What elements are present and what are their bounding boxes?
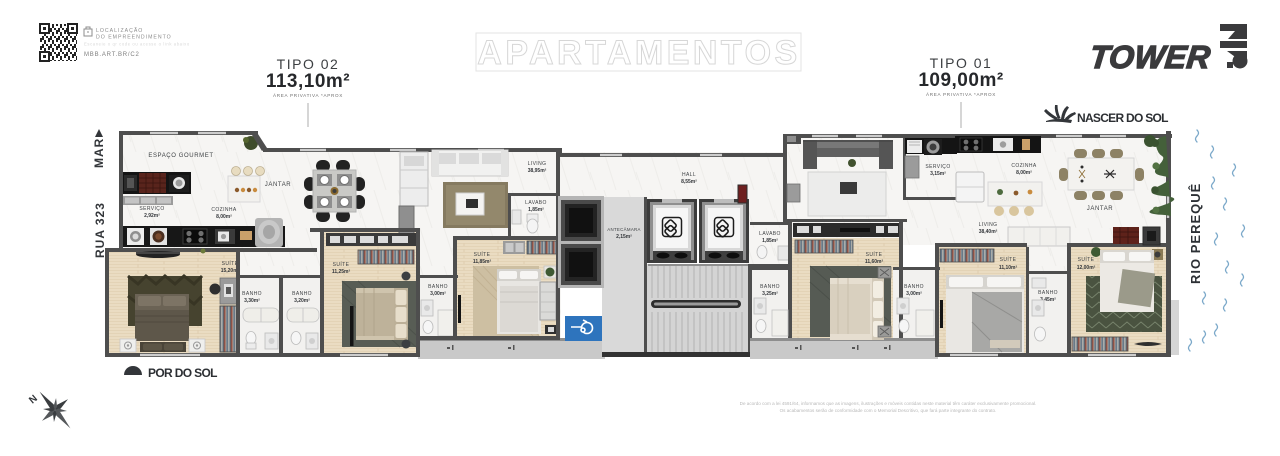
svg-text:109,00m²: 109,00m² xyxy=(918,70,1003,91)
svg-text:LOCALIZAÇÃO: LOCALIZAÇÃO xyxy=(96,27,143,34)
svg-text:HALL: HALL xyxy=(682,172,696,178)
svg-text:ANTECÂMARA: ANTECÂMARA xyxy=(607,227,641,232)
svg-text:2,92m²: 2,92m² xyxy=(144,213,160,219)
svg-text:LAVABO: LAVABO xyxy=(525,200,547,206)
svg-text:SERVIÇO: SERVIÇO xyxy=(139,206,164,212)
svg-text:BANHO: BANHO xyxy=(760,284,780,290)
svg-text:11,25m²: 11,25m² xyxy=(332,269,351,275)
svg-text:RUA 323: RUA 323 xyxy=(93,202,107,258)
svg-text:8,55m²: 8,55m² xyxy=(681,179,697,185)
svg-text:38,40m²: 38,40m² xyxy=(979,229,998,235)
svg-text:11,85m²: 11,85m² xyxy=(473,259,492,265)
svg-text:ÁREA PRIVATIVA *APROX: ÁREA PRIVATIVA *APROX xyxy=(273,92,343,98)
svg-text:BANHO: BANHO xyxy=(428,284,448,290)
svg-text:BANHO: BANHO xyxy=(904,284,924,290)
svg-text:POR DO SOL: POR DO SOL xyxy=(148,366,218,380)
svg-text:BANHO: BANHO xyxy=(292,291,312,297)
svg-text:BANHO: BANHO xyxy=(242,291,262,297)
svg-text:12,00m²: 12,00m² xyxy=(1077,265,1096,271)
svg-text:11,10m²: 11,10m² xyxy=(999,265,1018,271)
svg-text:COZINHA: COZINHA xyxy=(1011,163,1037,169)
svg-text:3,30m²: 3,30m² xyxy=(244,298,260,304)
svg-text:MAR: MAR xyxy=(92,138,106,168)
svg-text:NASCER DO SOL: NASCER DO SOL xyxy=(1077,111,1169,125)
svg-text:3,15m²: 3,15m² xyxy=(930,171,946,177)
svg-text:8,00m²: 8,00m² xyxy=(216,214,232,220)
svg-text:BANHO: BANHO xyxy=(1038,290,1058,296)
svg-text:ÁREA PRIVATIVA *APROX: ÁREA PRIVATIVA *APROX xyxy=(926,91,996,97)
svg-text:SUÍTE: SUÍTE xyxy=(866,251,883,258)
svg-text:1,85m²: 1,85m² xyxy=(762,238,778,244)
svg-text:3,20m²: 3,20m² xyxy=(294,298,310,304)
svg-text:3,00m²: 3,00m² xyxy=(430,291,446,297)
svg-text:3,00m²: 3,00m² xyxy=(906,291,922,297)
svg-text:ESPAÇO GOURMET: ESPAÇO GOURMET xyxy=(148,153,213,159)
svg-text:2,15m²: 2,15m² xyxy=(616,234,632,240)
svg-text:Os acabamentos serão de confor: Os acabamentos serão de conformidade com… xyxy=(780,408,997,413)
svg-text:COZINHA: COZINHA xyxy=(211,207,237,213)
svg-text:TOWER: TOWER xyxy=(1088,39,1212,75)
svg-text:SUÍTE: SUÍTE xyxy=(1078,256,1095,263)
svg-text:LIVING: LIVING xyxy=(528,161,547,167)
svg-text:8,00m²: 8,00m² xyxy=(1016,170,1032,176)
svg-text:RIO PEREQUÊ: RIO PEREQUÊ xyxy=(1188,183,1203,284)
svg-text:APARTAMENTOS: APARTAMENTOS xyxy=(477,34,800,72)
svg-text:1,85m²: 1,85m² xyxy=(528,207,544,213)
svg-text:TIPO 01: TIPO 01 xyxy=(930,55,993,71)
svg-text:Escaneie o qr code ou acesse o: Escaneie o qr code ou acesse o link abai… xyxy=(84,42,190,47)
svg-text:38,95m²: 38,95m² xyxy=(528,168,547,174)
svg-text:MBB.ART.BR/C2: MBB.ART.BR/C2 xyxy=(84,52,140,58)
svg-text:113,10m²: 113,10m² xyxy=(266,71,350,92)
svg-text:LAVABO: LAVABO xyxy=(759,231,781,237)
svg-text:3,25m²: 3,25m² xyxy=(762,291,778,297)
svg-text:11,60m²: 11,60m² xyxy=(865,259,884,265)
svg-text:LIVING: LIVING xyxy=(979,222,998,228)
svg-text:DO EMPREENDIMENTO: DO EMPREENDIMENTO xyxy=(96,35,172,41)
svg-text:JANTAR: JANTAR xyxy=(1087,206,1114,212)
svg-text:SERVIÇO: SERVIÇO xyxy=(925,164,950,170)
svg-text:SUÍTE: SUÍTE xyxy=(474,251,491,258)
svg-text:TIPO 02: TIPO 02 xyxy=(277,56,340,72)
svg-text:JANTAR: JANTAR xyxy=(265,182,292,188)
svg-text:SUÍTE: SUÍTE xyxy=(333,261,350,268)
svg-text:SUÍTE: SUÍTE xyxy=(1000,256,1017,263)
svg-text:De acordo com a lei 4591/64, i: De acordo com a lei 4591/64, informamos … xyxy=(740,401,1037,406)
